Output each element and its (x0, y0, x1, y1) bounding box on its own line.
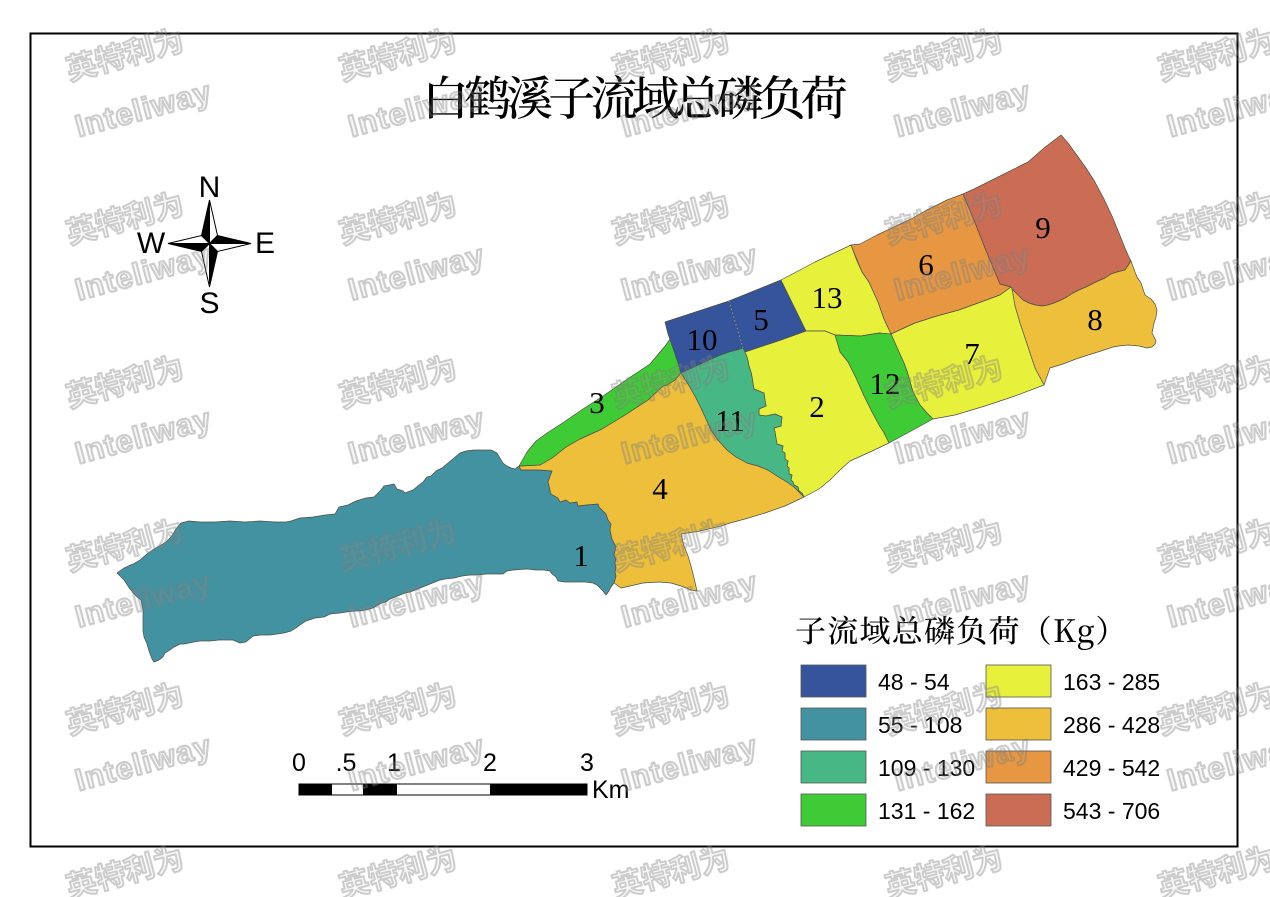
svg-text:429 - 542: 429 - 542 (1063, 755, 1160, 781)
svg-text:3: 3 (580, 749, 594, 777)
svg-text:0: 0 (292, 749, 306, 777)
svg-text:1: 1 (573, 538, 589, 573)
svg-text:4: 4 (652, 471, 668, 506)
svg-text:13: 13 (812, 280, 843, 315)
svg-text:286 - 428: 286 - 428 (1063, 712, 1160, 738)
svg-text:8: 8 (1087, 302, 1103, 337)
svg-text:E: E (255, 227, 275, 260)
svg-text:N: N (199, 171, 221, 204)
svg-text:10: 10 (687, 322, 718, 357)
svg-text:543 - 706: 543 - 706 (1063, 798, 1160, 824)
svg-text:9: 9 (1035, 210, 1051, 245)
svg-text:5: 5 (753, 302, 769, 337)
svg-text:48 - 54: 48 - 54 (878, 669, 950, 695)
svg-text:2: 2 (809, 389, 825, 424)
svg-text:S: S (199, 287, 219, 320)
svg-text:163 - 285: 163 - 285 (1063, 669, 1160, 695)
svg-text:3: 3 (589, 385, 605, 420)
svg-text:131 - 162: 131 - 162 (878, 798, 975, 824)
